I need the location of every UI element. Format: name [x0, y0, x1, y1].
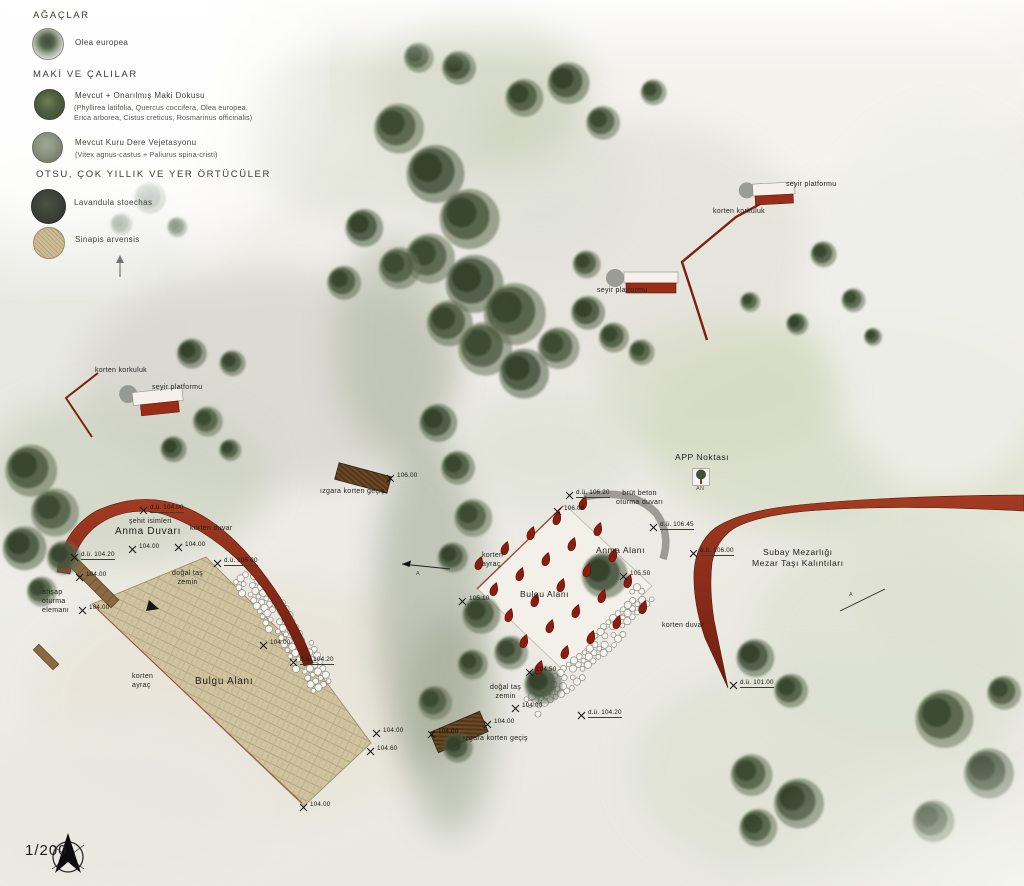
elevation-marker: d.ü. 104.00	[139, 506, 184, 515]
elevation-value: 104.50	[536, 666, 556, 673]
survey-cross-icon	[729, 681, 738, 690]
label-dogal-tas-zemin-1: doğal taş zemin	[172, 569, 203, 587]
elevation-marker: 104.50	[525, 668, 556, 677]
elevation-marker: 104.00	[511, 704, 542, 713]
label-ahsap-oturma-elemani: ahşap oturma elemanı	[42, 588, 69, 615]
elevation-marker: 104.00	[75, 573, 106, 582]
elevation-value: 104.00	[270, 639, 290, 646]
elevation-marker: 106.00	[386, 474, 417, 483]
survey-cross-icon	[483, 720, 492, 729]
survey-cross-icon	[427, 730, 436, 739]
survey-cross-icon	[128, 545, 137, 554]
elevation-value: d.ü. 104.20	[300, 656, 334, 665]
label-korten-duvar-2: korten duvar	[662, 621, 705, 630]
survey-cross-icon	[78, 606, 87, 615]
elevation-marker: d.ü. 104.20	[577, 711, 622, 720]
survey-cross-icon	[565, 491, 574, 500]
survey-cross-icon	[619, 572, 628, 581]
label-seyir-platformu-3: seyir platformu	[152, 383, 202, 392]
label-izgara-korten-gecis-1: ızgara korten geçiş	[320, 487, 385, 496]
elevation-marker: d.ü. 101.00	[729, 681, 774, 690]
label-korten-duvar-1: korten duvar	[190, 524, 233, 533]
elevation-value: 105.50	[630, 570, 650, 577]
elevation-value: 104.00	[522, 702, 542, 709]
elevation-value: 104.60	[377, 745, 397, 752]
elevation-marker: d.ü. 106.45	[649, 523, 694, 532]
label-scale: 1/200	[25, 841, 68, 861]
label-seyir-platformu-2: seyir platformu	[597, 286, 647, 295]
site-plan-page: { "scale_label": "1/200", "colors": { "c…	[0, 0, 1024, 886]
map-labels-layer: seyir platformukorten korkulukseyir plat…	[0, 0, 1024, 886]
label-brut-beton-oturma-duvari: brüt beton oturma duvarı	[616, 489, 663, 507]
elevation-marker: 104.00	[427, 730, 458, 739]
elevation-value: 106.00	[397, 472, 417, 479]
elevation-value: d.ü. 105.00	[224, 557, 258, 566]
elevation-marker: 104.00	[259, 641, 290, 650]
elevation-marker: 105.50	[619, 572, 650, 581]
survey-cross-icon	[458, 597, 467, 606]
elevation-value: 105.10	[469, 595, 489, 602]
label-korten-ayrac-1: korten ayraç	[132, 672, 153, 690]
label-bulgu-alani-2: Bulgu Alanı	[520, 589, 569, 600]
elevation-value: d.ü. 106.45	[660, 521, 694, 530]
elevation-value: 104.00	[494, 718, 514, 725]
elevation-value: d.ü. 104.20	[81, 551, 115, 560]
elevation-value: d.ü. 101.00	[740, 679, 774, 688]
label-izgara-korten-gecis-2: ızgara korten geçiş	[463, 734, 528, 743]
elevation-value: 104.00	[89, 604, 109, 611]
elevation-marker: d.ü. 105.00	[213, 559, 258, 568]
elevation-value: d.ü. 104.20	[588, 709, 622, 718]
elevation-marker: 104.00	[174, 543, 205, 552]
survey-cross-icon	[689, 549, 698, 558]
survey-cross-icon	[366, 747, 375, 756]
elevation-marker: 104.60	[366, 747, 397, 756]
survey-cross-icon	[511, 704, 520, 713]
elevation-marker: 105.10	[458, 597, 489, 606]
elevation-value: 104.00	[185, 541, 205, 548]
elevation-value: 106.00	[564, 505, 584, 512]
elevation-marker: 104.00	[128, 545, 159, 554]
survey-cross-icon	[174, 543, 183, 552]
elevation-marker: 106.00	[553, 507, 584, 516]
label-section-a-2: A	[849, 592, 853, 599]
elevation-value: d.ü. 106.20	[576, 489, 610, 498]
elevation-marker: d.ü. 106.00	[689, 549, 734, 558]
elevation-marker: d.ü. 104.20	[289, 658, 334, 667]
elevation-value: d.ü. 104.00	[150, 504, 184, 513]
survey-cross-icon	[299, 803, 308, 812]
elevation-marker: 104.00	[299, 803, 330, 812]
label-bulgu-alani-1: Bulgu Alanı	[195, 675, 253, 688]
survey-cross-icon	[139, 506, 148, 515]
survey-cross-icon	[75, 573, 84, 582]
elevation-value: 104.00	[310, 801, 330, 808]
survey-cross-icon	[386, 474, 395, 483]
elevation-marker: d.ü. 106.20	[565, 491, 610, 500]
elevation-marker: 104.00	[78, 606, 109, 615]
label-korten-korkuluk-2: korten korkuluk	[95, 366, 147, 375]
elevation-value: 104.00	[438, 728, 458, 735]
label-dogal-tas-zemin-2: doğal taş zemin	[490, 683, 521, 701]
survey-cross-icon	[649, 523, 658, 532]
label-subay-mezarligi: Subay Mezarlığı Mezar Taşı Kalıntıları	[752, 547, 844, 569]
label-seyir-platformu-1: seyir platformu	[786, 180, 836, 189]
elevation-marker: d.ü. 104.20	[70, 553, 115, 562]
survey-cross-icon	[577, 711, 586, 720]
label-an: AN	[696, 486, 704, 493]
survey-cross-icon	[213, 559, 222, 568]
elevation-marker: 104.00	[483, 720, 514, 729]
label-anma-duvari: Anma Duvarı	[115, 525, 181, 538]
survey-cross-icon	[70, 553, 79, 562]
survey-cross-icon	[372, 729, 381, 738]
elevation-marker: 104.00	[372, 729, 403, 738]
label-korten-ayrac-2: korten ayraç	[482, 551, 503, 569]
survey-cross-icon	[259, 641, 268, 650]
label-app-noktasi: APP Noktası	[675, 452, 729, 463]
elevation-value: 104.00	[383, 727, 403, 734]
label-section-a-1: A	[416, 571, 420, 578]
elevation-value: 104.00	[139, 543, 159, 550]
elevation-value: 104.00	[86, 571, 106, 578]
survey-cross-icon	[553, 507, 562, 516]
label-anma-alani: Anma Alanı	[596, 545, 645, 556]
survey-cross-icon	[525, 668, 534, 677]
elevation-value: d.ü. 106.00	[700, 547, 734, 556]
label-korten-korkuluk-1: korten korkuluk	[713, 207, 765, 216]
survey-cross-icon	[289, 658, 298, 667]
